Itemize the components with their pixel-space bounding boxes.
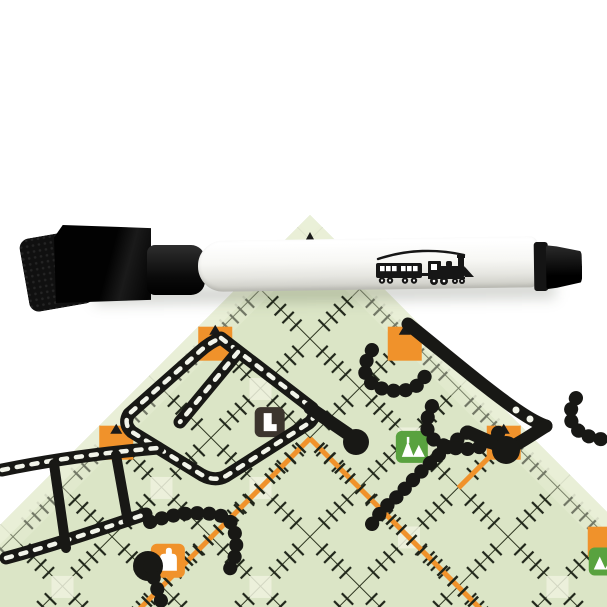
bead-track-bottom	[150, 513, 236, 572]
bead-curve-3	[570, 398, 607, 439]
track-dot	[527, 416, 534, 423]
track-dot	[513, 407, 520, 414]
dotted-loop-track	[127, 338, 314, 479]
ink-blob	[343, 429, 369, 455]
hand-drawn-tracks	[0, 0, 607, 607]
product-photo	[0, 0, 607, 607]
bead-curve-1	[365, 350, 428, 391]
